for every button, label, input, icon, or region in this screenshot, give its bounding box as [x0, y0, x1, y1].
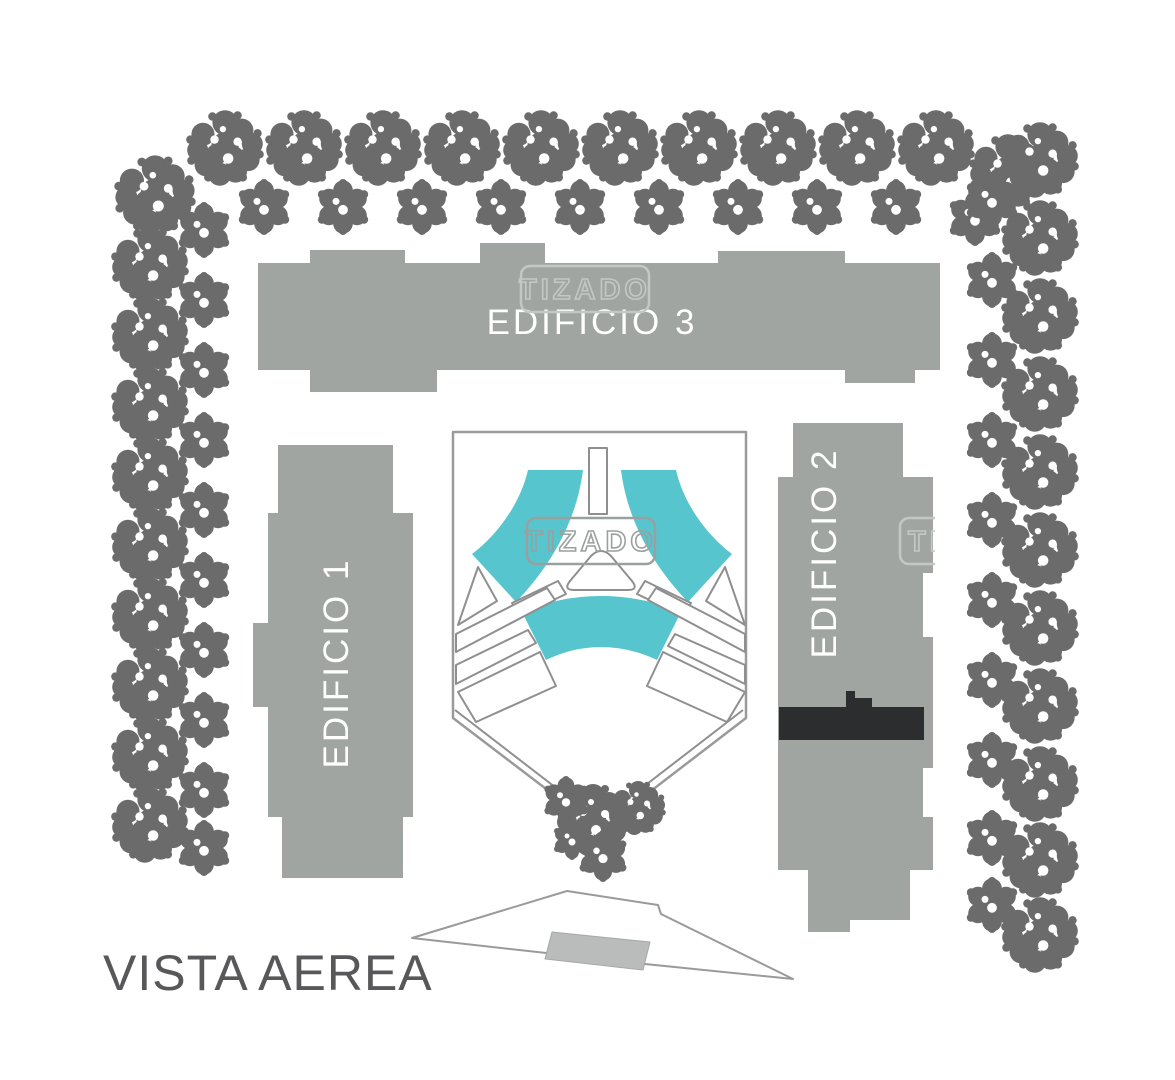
- shrub-icon: [318, 179, 368, 235]
- shrub-icon: [476, 179, 526, 235]
- tree-icon: [265, 110, 343, 186]
- shrub-icon: [792, 179, 842, 235]
- tree-icon: [502, 110, 580, 186]
- central-plaza: [453, 432, 746, 830]
- road-median: [545, 932, 650, 970]
- site-plan-canvas: EDIFICIO 3 EDIFICIO 1 EDIFICIO 2: [0, 0, 1175, 1080]
- building-edificio-2[interactable]: EDIFICIO 2: [778, 423, 933, 932]
- aerial-site-plan: EDIFICIO 3 EDIFICIO 1 EDIFICIO 2: [0, 0, 1175, 1080]
- tree-icon: [111, 227, 189, 303]
- shrub-icon: [239, 179, 289, 235]
- watermark-text: TIZADO: [525, 526, 657, 558]
- access-road-sketch: [412, 891, 793, 979]
- tree-icon: [111, 647, 189, 723]
- tree-icon: [111, 577, 189, 653]
- shrub-icon: [634, 179, 684, 235]
- plaza-north-deck: [589, 448, 607, 514]
- tree-icon: [1001, 668, 1079, 744]
- shrub-icon: [713, 179, 763, 235]
- building-edificio-1[interactable]: EDIFICIO 1: [253, 445, 413, 878]
- building-3-label: EDIFICIO 3: [487, 303, 698, 342]
- watermark-text: TIZADO: [519, 274, 651, 306]
- tree-icon: [111, 507, 189, 583]
- tree-icon: [111, 437, 189, 513]
- tree-icon: [111, 367, 189, 443]
- tree-icon: [186, 110, 264, 186]
- building-2-label: EDIFICIO 2: [805, 448, 844, 659]
- building-2-dark-band: [779, 707, 924, 740]
- shrub-icon: [555, 179, 605, 235]
- tree-icon: [344, 110, 422, 186]
- tree-icon: [897, 110, 975, 186]
- building-1-label: EDIFICIO 1: [317, 558, 356, 769]
- shrub-icon: [397, 179, 447, 235]
- tree-icon: [660, 110, 738, 186]
- shrub-icon: [871, 179, 921, 235]
- tree-icon: [581, 110, 659, 186]
- tree-icon: [739, 110, 817, 186]
- tree-icon: [818, 110, 896, 186]
- tree-icon: [111, 297, 189, 373]
- tree-icon: [111, 787, 189, 863]
- page-title: VISTA AEREA: [103, 945, 433, 1001]
- building-2-footprint[interactable]: [778, 423, 933, 932]
- tree-icon: [111, 717, 189, 793]
- tree-icon: [423, 110, 501, 186]
